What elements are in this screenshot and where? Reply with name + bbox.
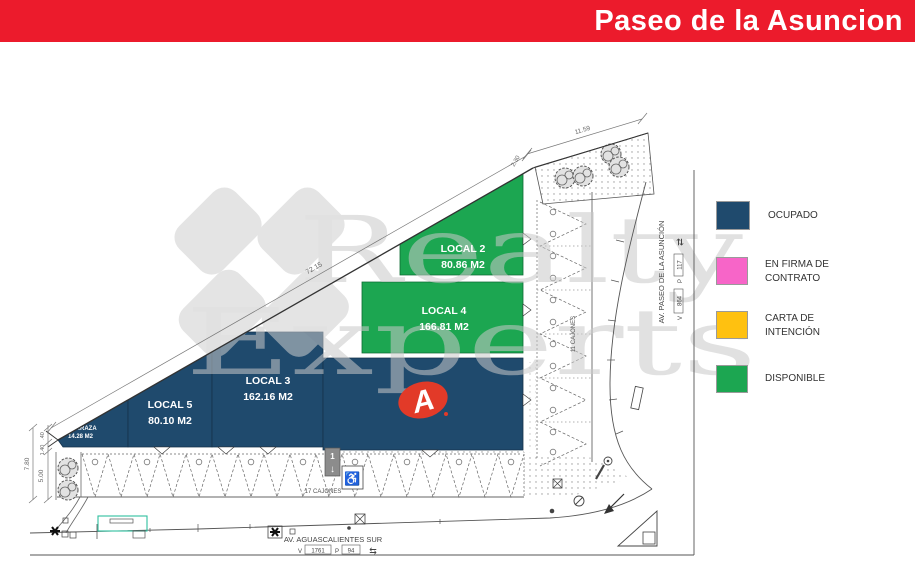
handicap-parking: ♿ [342, 466, 363, 489]
south-v-number: 1761 [311, 549, 325, 555]
survey-star-symbol [270, 528, 280, 536]
legend-label-ocupado: OCUPADO [768, 209, 818, 223]
front-parking-strip [57, 454, 524, 497]
corner-building [97, 516, 147, 539]
page-title: Paseo de la Asuncion [594, 5, 915, 38]
local-4-name: LOCAL 4 [422, 305, 467, 317]
legend-swatch-en-firma [716, 257, 748, 285]
legend-label-disponible: DISPONIBLE [765, 372, 825, 386]
svg-text:P: P [678, 279, 684, 283]
page: { "header": { "title": "Paseo de la Asun… [0, 0, 915, 569]
east-street-label: AV. PASEO DE LA ASUNCIÓN [657, 221, 666, 324]
terraza-area: 14.28 M2 [68, 434, 94, 440]
side-parking-label: 11 CAJONES [571, 316, 577, 352]
east-v-number: 864 [678, 295, 684, 306]
parking-spot-markers [92, 459, 514, 465]
south-street-refs: V 1761 P 94 ⇆ [298, 545, 377, 556]
wheelchair-icon: ♿ [344, 471, 360, 486]
title-bar: Paseo de la Asuncion [0, 0, 915, 42]
svg-text:P: P [335, 549, 339, 555]
local-2-area: 80.86 M2 [441, 259, 485, 271]
local-4-area: 166.81 M2 [419, 321, 469, 333]
svg-text:V: V [678, 316, 684, 320]
lane-direction-icon: ⇄ [675, 238, 685, 246]
svg-text:V: V [298, 549, 302, 555]
flow-arrow [604, 494, 624, 514]
dim-top: 11.59 [574, 125, 592, 136]
local-3-area: 162.16 M2 [243, 391, 293, 403]
front-parking-label: 17 CAJONES [305, 489, 342, 495]
east-p-number: 117 [678, 260, 684, 270]
watermark-word-1: Realty [298, 197, 743, 304]
scale-triangle-symbol [618, 511, 657, 546]
south-street-label: AV. AGUASCALIENTES SUR [284, 535, 383, 544]
local-5-area: 80.10 M2 [148, 415, 192, 427]
legend-swatch-disponible [716, 365, 748, 393]
entrance-marker: 1 ↓ [325, 448, 340, 476]
dim-left-total: 7.80 [24, 457, 31, 470]
realty-experts-watermark: Realty Experts [168, 181, 757, 396]
down-arrow-icon: ↓ [330, 464, 335, 475]
legend-swatch-carta [716, 311, 748, 339]
legend: OCUPADO EN FIRMA DECONTRATO CARTA DEINTE… [700, 180, 915, 420]
local-3-name: LOCAL 3 [246, 375, 291, 387]
legend-label-en-firma: EN FIRMA DECONTRATO [765, 258, 829, 286]
entrance-number: 1 [330, 452, 335, 461]
dim-top-small: 2.30 [511, 154, 522, 168]
lane-direction-icon: ⇆ [369, 546, 377, 556]
legend-swatch-ocupado [716, 201, 750, 230]
local-5-name: LOCAL 5 [148, 399, 193, 411]
dim-left-s2: 1.40 [40, 445, 46, 456]
dim-left-inner: 5.00 [38, 469, 45, 482]
dim-left-s1: .40 [40, 432, 46, 440]
survey-star-symbol [50, 527, 60, 535]
south-p-number: 94 [348, 549, 355, 555]
local-2-name: LOCAL 2 [441, 243, 486, 255]
legend-label-carta: CARTA DEINTENCIÓN [765, 312, 820, 340]
